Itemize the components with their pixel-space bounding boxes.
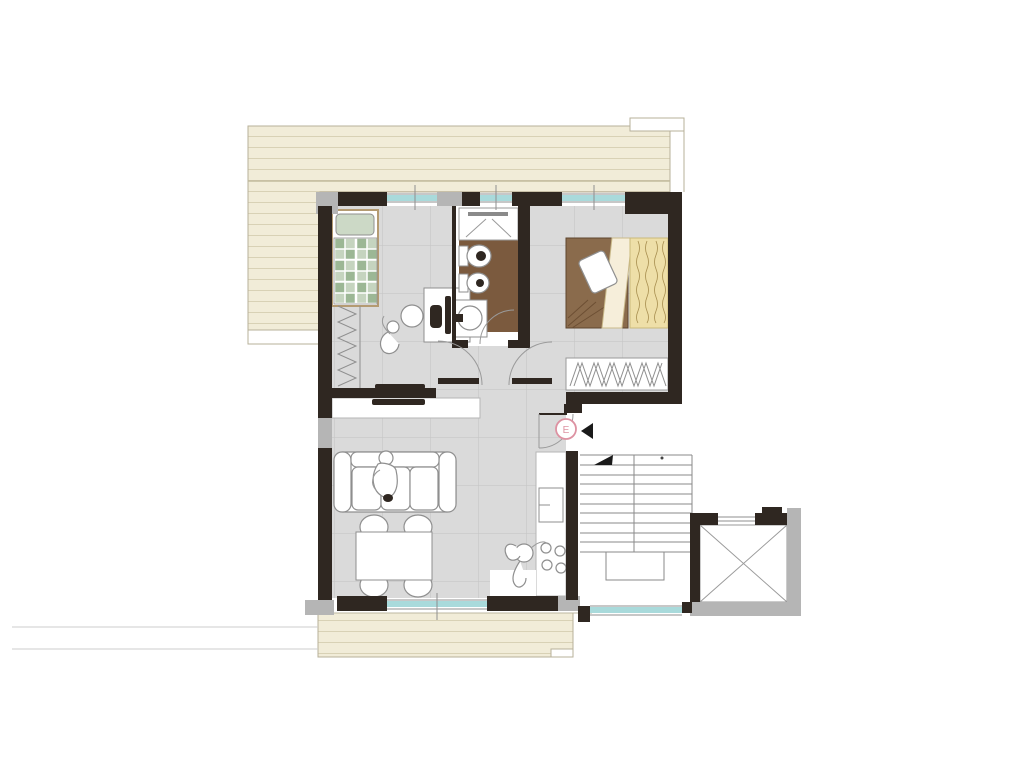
floor-plan-page: E (0, 0, 1024, 768)
bidet (459, 273, 489, 293)
desk-computer (430, 305, 442, 328)
entry-wall (566, 451, 578, 600)
study-door-leaf (438, 378, 479, 384)
dining-table (356, 532, 432, 580)
single-bed-blanket (334, 238, 377, 304)
elevator-door (718, 517, 755, 521)
desk-monitor (445, 296, 451, 334)
bathroom-left-wall (452, 206, 456, 346)
bedroom (566, 238, 668, 390)
balcony-deck (318, 613, 573, 657)
pillar-bottom-left (305, 600, 334, 615)
stair-newel-dot (661, 457, 664, 460)
toilet (459, 245, 491, 267)
kitchen-floor-white (490, 570, 536, 596)
elevator (682, 507, 801, 616)
bedroom-wardrobe (566, 358, 668, 390)
single-bed-pillow (336, 214, 374, 235)
floor-plan-drawing: E (0, 0, 1024, 768)
elevator-bottom-wall (690, 602, 801, 616)
kitchen-counter-floor (536, 452, 566, 596)
bedroom-right-wall (668, 214, 682, 404)
balcony-notch (551, 649, 573, 657)
stairs-up-arrow-icon (594, 455, 613, 465)
shower-head-bar (468, 212, 508, 216)
left-wall (318, 206, 332, 418)
entrance-marker-label: E (563, 425, 570, 436)
study-living-wall (332, 388, 436, 398)
bathroom-door-leaf (523, 254, 528, 296)
elevator-right-wall (787, 508, 801, 616)
lower-balcony (12, 613, 592, 657)
entrance-arrow-icon (581, 423, 593, 439)
terrace-step (248, 330, 320, 344)
window-stairwell (590, 606, 682, 615)
pillar-left (318, 418, 332, 448)
office-chair (401, 305, 423, 327)
stairwell (580, 455, 692, 602)
bedroom-bottom-wall (566, 392, 682, 404)
stair-landing (606, 552, 664, 580)
bedroom-door-leaf (512, 378, 552, 384)
tv (372, 399, 425, 405)
bed-duvet-yellow (630, 238, 668, 328)
roof-notch (630, 118, 684, 131)
pillar-top-mid (437, 192, 462, 206)
stair-steps (580, 455, 692, 552)
